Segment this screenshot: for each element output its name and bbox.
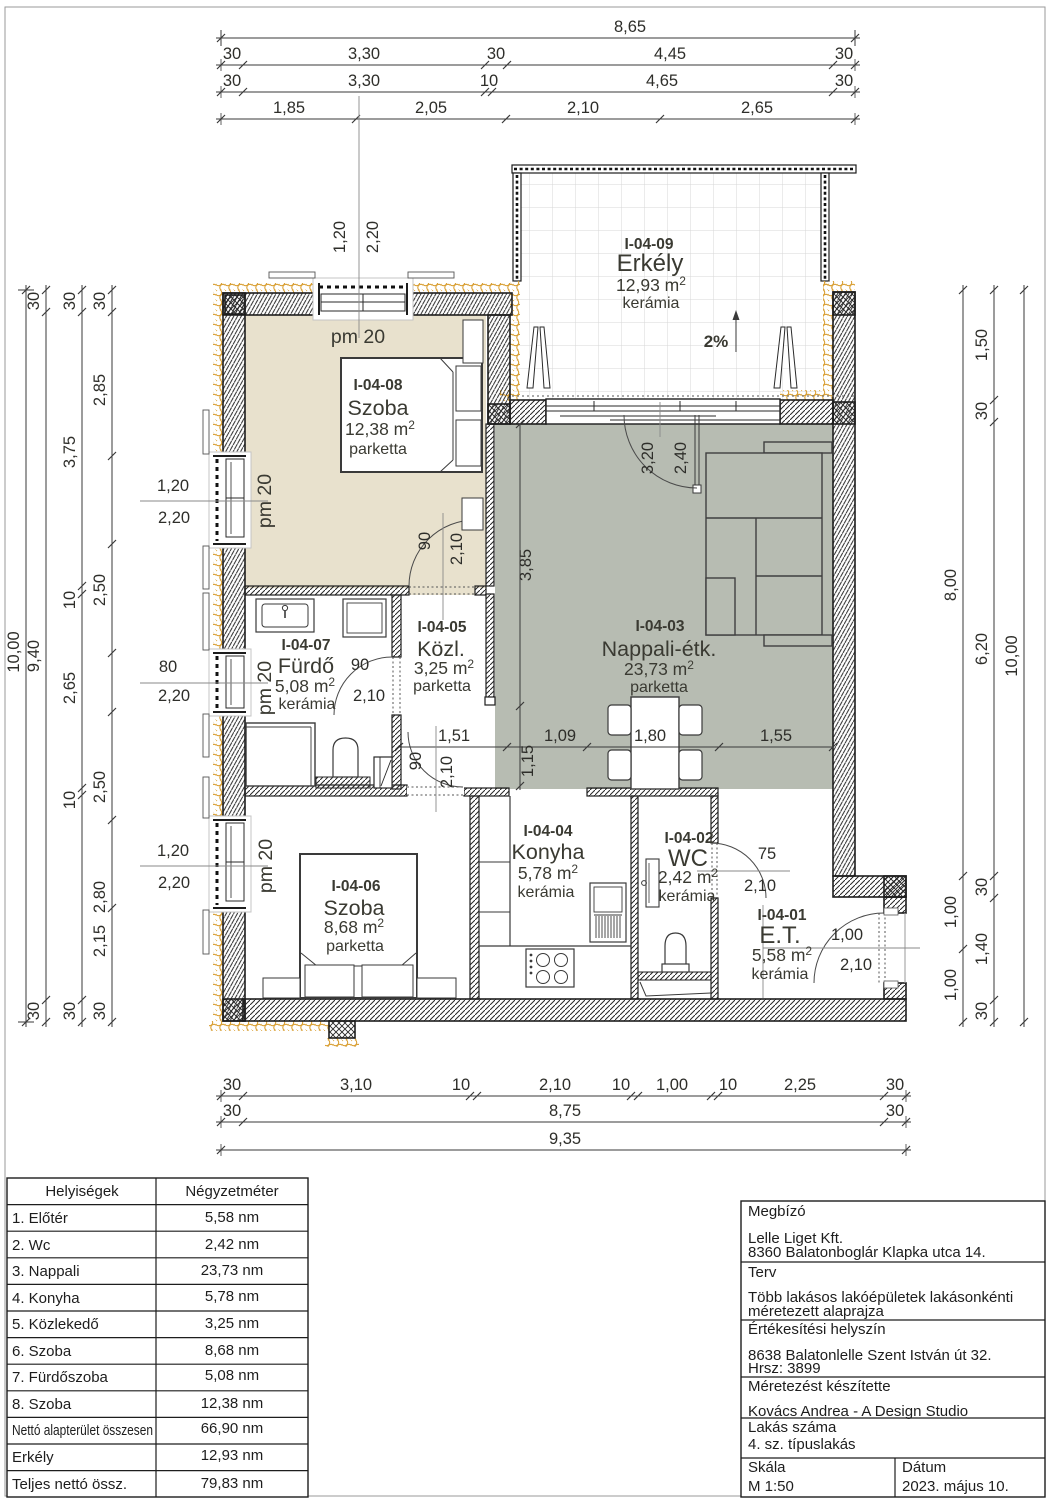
svg-text:7. Fürdőszoba: 7. Fürdőszoba bbox=[12, 1369, 109, 1386]
svg-text:5,08 nm: 5,08 nm bbox=[205, 1367, 259, 1384]
svg-text:30: 30 bbox=[973, 402, 991, 420]
svg-text:8,65: 8,65 bbox=[614, 18, 646, 36]
svg-text:30: 30 bbox=[61, 1002, 79, 1020]
svg-text:8,75: 8,75 bbox=[549, 1102, 581, 1120]
svg-text:6,20: 6,20 bbox=[973, 633, 991, 665]
svg-text:30: 30 bbox=[91, 1002, 109, 1020]
svg-text:5,08 m2: 5,08 m2 bbox=[275, 675, 336, 696]
svg-text:I-04-04: I-04-04 bbox=[523, 823, 572, 840]
svg-text:Nappali-étk.: Nappali-étk. bbox=[602, 637, 717, 661]
svg-text:30: 30 bbox=[223, 1076, 241, 1094]
svg-text:10,00: 10,00 bbox=[5, 631, 23, 672]
svg-text:1,80: 1,80 bbox=[634, 727, 666, 745]
svg-text:2,10: 2,10 bbox=[840, 956, 872, 974]
svg-text:Szoba: Szoba bbox=[348, 396, 409, 420]
svg-text:1,00: 1,00 bbox=[831, 926, 863, 944]
svg-text:parketta: parketta bbox=[413, 678, 471, 695]
svg-text:23,73 nm: 23,73 nm bbox=[201, 1262, 264, 1279]
svg-text:4. Konyha: 4. Konyha bbox=[12, 1290, 80, 1307]
svg-text:10: 10 bbox=[480, 72, 498, 90]
svg-text:30: 30 bbox=[223, 1102, 241, 1120]
svg-text:1,00: 1,00 bbox=[942, 896, 960, 928]
svg-text:kerámia: kerámia bbox=[659, 888, 716, 905]
svg-text:3,20: 3,20 bbox=[639, 442, 657, 474]
svg-text:1,09: 1,09 bbox=[544, 727, 576, 745]
svg-text:30: 30 bbox=[61, 292, 79, 310]
svg-text:12,93 m2: 12,93 m2 bbox=[616, 274, 686, 295]
svg-text:parketta: parketta bbox=[349, 441, 407, 458]
svg-text:79,83 nm: 79,83 nm bbox=[201, 1475, 264, 1492]
svg-text:Méretezést készítette: Méretezést készítette bbox=[748, 1378, 891, 1395]
svg-text:parketta: parketta bbox=[630, 679, 688, 696]
svg-text:2,50: 2,50 bbox=[91, 574, 109, 606]
svg-text:Értékesítési helyszín: Értékesítési helyszín bbox=[748, 1321, 886, 1338]
svg-text:5,78 nm: 5,78 nm bbox=[205, 1288, 259, 1305]
svg-text:Lakás száma: Lakás száma bbox=[748, 1419, 837, 1436]
svg-text:2,15: 2,15 bbox=[91, 925, 109, 957]
svg-text:pm 20: pm 20 bbox=[255, 839, 277, 893]
svg-text:4,45: 4,45 bbox=[654, 45, 686, 63]
svg-text:10: 10 bbox=[719, 1076, 737, 1094]
svg-text:30: 30 bbox=[973, 878, 991, 896]
svg-text:2,65: 2,65 bbox=[61, 672, 79, 704]
svg-text:9,40: 9,40 bbox=[25, 640, 43, 672]
svg-text:kerámia: kerámia bbox=[752, 966, 809, 983]
svg-text:30: 30 bbox=[835, 45, 853, 63]
svg-text:75: 75 bbox=[758, 845, 776, 863]
svg-text:pm 20: pm 20 bbox=[331, 326, 385, 348]
svg-text:kerámia: kerámia bbox=[623, 295, 680, 312]
svg-text:8. Szoba: 8. Szoba bbox=[12, 1396, 72, 1413]
svg-text:I-04-05: I-04-05 bbox=[417, 619, 466, 636]
svg-text:1,20: 1,20 bbox=[331, 221, 349, 253]
svg-text:4. sz. típuslakás: 4. sz. típuslakás bbox=[748, 1436, 856, 1453]
svg-text:90: 90 bbox=[416, 532, 434, 550]
svg-text:Erkély: Erkély bbox=[12, 1449, 54, 1466]
svg-text:5,58 nm: 5,58 nm bbox=[205, 1209, 259, 1226]
svg-text:3,10: 3,10 bbox=[340, 1076, 372, 1094]
svg-text:Kovács Andrea - A Design Studi: Kovács Andrea - A Design Studio bbox=[748, 1403, 968, 1420]
svg-text:Erkély: Erkély bbox=[617, 250, 684, 277]
svg-text:10,00: 10,00 bbox=[1003, 635, 1021, 676]
svg-text:Konyha: Konyha bbox=[512, 840, 585, 864]
svg-text:2,40: 2,40 bbox=[672, 442, 690, 474]
svg-text:I-04-07: I-04-07 bbox=[281, 637, 330, 654]
svg-text:2,05: 2,05 bbox=[415, 99, 447, 117]
svg-text:2,10: 2,10 bbox=[539, 1076, 571, 1094]
svg-text:3,85: 3,85 bbox=[517, 549, 535, 581]
svg-text:1,51: 1,51 bbox=[438, 727, 470, 745]
svg-text:10: 10 bbox=[61, 591, 79, 609]
svg-text:5. Közlekedő: 5. Közlekedő bbox=[12, 1316, 99, 1333]
svg-text:parketta: parketta bbox=[326, 938, 384, 955]
svg-text:pm 20: pm 20 bbox=[254, 661, 276, 715]
svg-text:3,30: 3,30 bbox=[348, 72, 380, 90]
svg-text:12,93 nm: 12,93 nm bbox=[201, 1447, 264, 1464]
svg-text:2. Wc: 2. Wc bbox=[12, 1237, 51, 1254]
svg-text:2,10: 2,10 bbox=[438, 756, 456, 788]
svg-text:30: 30 bbox=[835, 72, 853, 90]
svg-text:2,10: 2,10 bbox=[353, 687, 385, 705]
svg-text:8,68 m2: 8,68 m2 bbox=[324, 916, 385, 937]
svg-text:30: 30 bbox=[223, 45, 241, 63]
svg-text:Dátum: Dátum bbox=[902, 1459, 946, 1476]
svg-text:2,10: 2,10 bbox=[567, 99, 599, 117]
svg-text:1. Előtér: 1. Előtér bbox=[12, 1210, 68, 1227]
svg-text:1,50: 1,50 bbox=[973, 329, 991, 361]
svg-text:30: 30 bbox=[91, 292, 109, 310]
svg-text:30: 30 bbox=[973, 1002, 991, 1020]
svg-text:8360 Balatonboglár Klapka utca: 8360 Balatonboglár Klapka utca 14. bbox=[748, 1244, 986, 1261]
svg-text:90: 90 bbox=[407, 752, 425, 770]
svg-text:2,25: 2,25 bbox=[784, 1076, 816, 1094]
svg-text:2023. május 10.: 2023. május 10. bbox=[902, 1478, 1009, 1495]
svg-text:1,40: 1,40 bbox=[973, 933, 991, 965]
svg-text:1,00: 1,00 bbox=[942, 969, 960, 1001]
svg-text:2,20: 2,20 bbox=[158, 687, 190, 705]
svg-text:2,85: 2,85 bbox=[91, 374, 109, 406]
svg-text:10: 10 bbox=[61, 791, 79, 809]
svg-text:Terv: Terv bbox=[748, 1264, 777, 1281]
svg-text:Hrsz: 3899: Hrsz: 3899 bbox=[748, 1360, 821, 1377]
svg-text:2%: 2% bbox=[704, 332, 729, 351]
svg-text:I-04-03: I-04-03 bbox=[635, 618, 684, 635]
svg-text:2,50: 2,50 bbox=[91, 771, 109, 803]
svg-text:30: 30 bbox=[25, 1002, 43, 1020]
svg-text:12,38 nm: 12,38 nm bbox=[201, 1395, 264, 1412]
svg-text:12,38 m2: 12,38 m2 bbox=[345, 418, 415, 439]
svg-text:3,25 m2: 3,25 m2 bbox=[414, 657, 475, 678]
svg-text:3,30: 3,30 bbox=[348, 45, 380, 63]
svg-text:2,10: 2,10 bbox=[744, 877, 776, 895]
svg-text:6. Szoba: 6. Szoba bbox=[12, 1343, 72, 1360]
svg-text:3,75: 3,75 bbox=[61, 436, 79, 468]
svg-text:23,73 m2: 23,73 m2 bbox=[624, 658, 694, 679]
svg-text:1,20: 1,20 bbox=[157, 477, 189, 495]
svg-text:1,55: 1,55 bbox=[760, 727, 792, 745]
svg-text:2,80: 2,80 bbox=[91, 881, 109, 913]
svg-text:Helyiségek: Helyiségek bbox=[45, 1183, 119, 1200]
svg-text:3. Nappali: 3. Nappali bbox=[12, 1263, 80, 1280]
svg-text:30: 30 bbox=[223, 72, 241, 90]
svg-text:2,65: 2,65 bbox=[741, 99, 773, 117]
svg-text:1,00: 1,00 bbox=[656, 1076, 688, 1094]
svg-text:I-04-06: I-04-06 bbox=[331, 878, 380, 895]
svg-text:30: 30 bbox=[487, 45, 505, 63]
svg-text:8,00: 8,00 bbox=[942, 569, 960, 601]
svg-text:2,20: 2,20 bbox=[158, 509, 190, 527]
svg-text:1,20: 1,20 bbox=[157, 842, 189, 860]
svg-text:66,90 nm: 66,90 nm bbox=[201, 1420, 264, 1437]
svg-text:30: 30 bbox=[886, 1102, 904, 1120]
svg-text:2,20: 2,20 bbox=[158, 874, 190, 892]
svg-text:1,15: 1,15 bbox=[519, 745, 537, 777]
svg-text:I-04-08: I-04-08 bbox=[353, 377, 402, 394]
svg-text:90: 90 bbox=[351, 656, 369, 674]
svg-text:3,25 nm: 3,25 nm bbox=[205, 1315, 259, 1332]
svg-text:Teljes nettó össz.: Teljes nettó össz. bbox=[12, 1476, 127, 1493]
svg-text:Megbízó: Megbízó bbox=[748, 1203, 806, 1220]
svg-text:Fürdő: Fürdő bbox=[278, 654, 334, 678]
svg-text:8,68 nm: 8,68 nm bbox=[205, 1342, 259, 1359]
svg-text:30: 30 bbox=[25, 292, 43, 310]
svg-text:30: 30 bbox=[886, 1076, 904, 1094]
svg-text:5,78 m2: 5,78 m2 bbox=[518, 862, 579, 883]
svg-text:M 1:50: M 1:50 bbox=[748, 1478, 794, 1495]
svg-text:10: 10 bbox=[612, 1076, 630, 1094]
svg-text:1,85: 1,85 bbox=[273, 99, 305, 117]
svg-text:80: 80 bbox=[159, 658, 177, 676]
svg-text:kerámia: kerámia bbox=[518, 884, 575, 901]
svg-text:9,35: 9,35 bbox=[549, 1130, 581, 1148]
svg-text:2,10: 2,10 bbox=[448, 533, 466, 565]
svg-text:Négyzetméter: Négyzetméter bbox=[185, 1183, 278, 1200]
svg-text:méretezett alaprajza: méretezett alaprajza bbox=[748, 1303, 885, 1320]
svg-text:Skála: Skála bbox=[748, 1459, 786, 1476]
svg-text:2,42 m2: 2,42 m2 bbox=[658, 866, 719, 887]
svg-text:kerámia: kerámia bbox=[279, 696, 336, 713]
svg-text:2,20: 2,20 bbox=[364, 221, 382, 253]
svg-text:10: 10 bbox=[452, 1076, 470, 1094]
svg-text:Nettó alapterület összesen: Nettó alapterület összesen bbox=[12, 1422, 153, 1439]
svg-text:5,58 m2: 5,58 m2 bbox=[752, 944, 813, 965]
svg-text:pm 20: pm 20 bbox=[254, 474, 276, 528]
svg-text:4,65: 4,65 bbox=[646, 72, 678, 90]
svg-text:2,42 nm: 2,42 nm bbox=[205, 1236, 259, 1253]
